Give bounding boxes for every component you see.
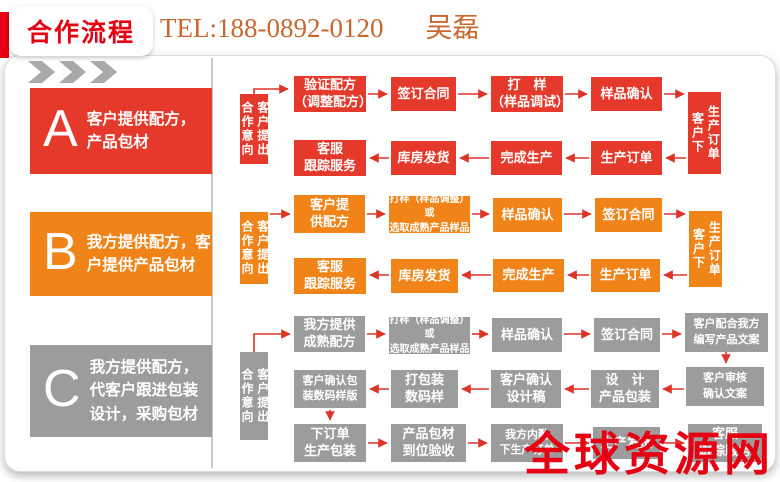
contact-line: TEL:188-0892-0120吴磊 [160,6,479,45]
step-a-service-follow: 客服 跟踪服务 [294,140,366,176]
step-c-write-product-copy: 客户配合我方 编写产品文案 [685,313,768,352]
section-b-letter: B [30,226,87,282]
step-a-make-sample: 打 样 （样品调试） [491,76,563,112]
step-c-design-packaging: 设 计 产品包装 [591,370,659,408]
step-c-sign-contract: 签订合同 [594,318,660,352]
step-a-verify-formula: 验证配方 （调整配方） [294,76,366,112]
section-c-desc: 我方提供配方， 代客户跟进包装 设计，采购包材 [90,356,199,426]
step-c-make-digital-proof: 打包装 数码样 [391,370,458,408]
page-title-badge: 合作流程 [9,6,153,56]
step-a-customer-place-order: 客户下生产订单 [688,92,721,174]
step-c-we-provide-formula: 我方提供 成熟配方 [294,316,365,352]
step-b-make-or-select-sample: 打样（样品调整）或 选取成熟产品样品 [389,196,470,233]
step-b-production-order: 生产订单 [591,259,660,292]
step-a-complete-production: 完成生产 [491,141,562,175]
section-c-letter: C [30,363,90,419]
section-a: A 客户提供配方， 产品包材 [30,88,212,174]
step-b-customer-provide-formula: 客户提 供配方 [294,195,365,233]
step-b-sample-confirm: 样品确认 [493,198,562,232]
step-c-sample-confirm: 样品确认 [492,318,562,352]
step-a-customer-propose: 合作意向客户提出 [240,94,268,164]
section-b: B 我方提供配方，客 户提供产品包材 [30,212,212,296]
step-c-customer-propose: 合作意向客户提出 [240,352,268,440]
step-c-confirm-digital-proof: 客户确认包 装数码样版 [294,370,366,408]
cooperation-flow-page: 合作流程 TEL:188-0892-0120吴磊 A 客户提供配方， 产品包材 … [0,0,780,482]
page-title: 合作流程 [27,13,135,49]
step-c-order-packaging: 下订单 生产包装 [294,424,366,462]
step-c-confirm-design-draft: 客户确认 设计稿 [491,370,561,408]
step-b-customer-propose: 合作意向客户提出 [240,212,268,284]
section-a-letter: A [30,103,87,159]
contact-name: 吴磊 [425,13,479,43]
chevron-right-icon [28,60,120,84]
step-a-warehouse-ship: 库房发货 [391,141,456,175]
step-b-sign-contract: 签订合同 [595,198,662,232]
step-a-sample-confirm: 样品确认 [591,77,662,111]
left-red-ribbon [0,12,9,58]
step-b-warehouse-ship: 库房发货 [391,259,458,293]
section-c: C 我方提供配方， 代客户跟进包装 设计，采购包材 [30,345,212,437]
step-c-packaging-acceptance: 产品包材 到位验收 [391,424,466,462]
step-a-sign-contract: 签订合同 [391,77,456,111]
step-b-service-follow: 客服 跟踪服务 [294,258,366,294]
section-a-desc: 客户提供配方， 产品包材 [87,108,196,155]
step-a-production-order: 生产订单 [591,141,662,175]
step-b-complete-production: 完成生产 [493,259,564,292]
section-b-desc: 我方提供配方，客 户提供产品包材 [87,231,211,278]
step-c-review-confirm-copy: 客户审核 确认文案 [686,367,764,406]
step-c-make-or-select-sample: 打样（样品调整）或 选取成熟产品样品 [389,317,470,354]
phone-number: TEL:188-0892-0120 [160,13,383,43]
step-b-customer-place-order: 客户下生产订单 [689,211,722,287]
watermark: 全球资源网 [524,418,774,482]
